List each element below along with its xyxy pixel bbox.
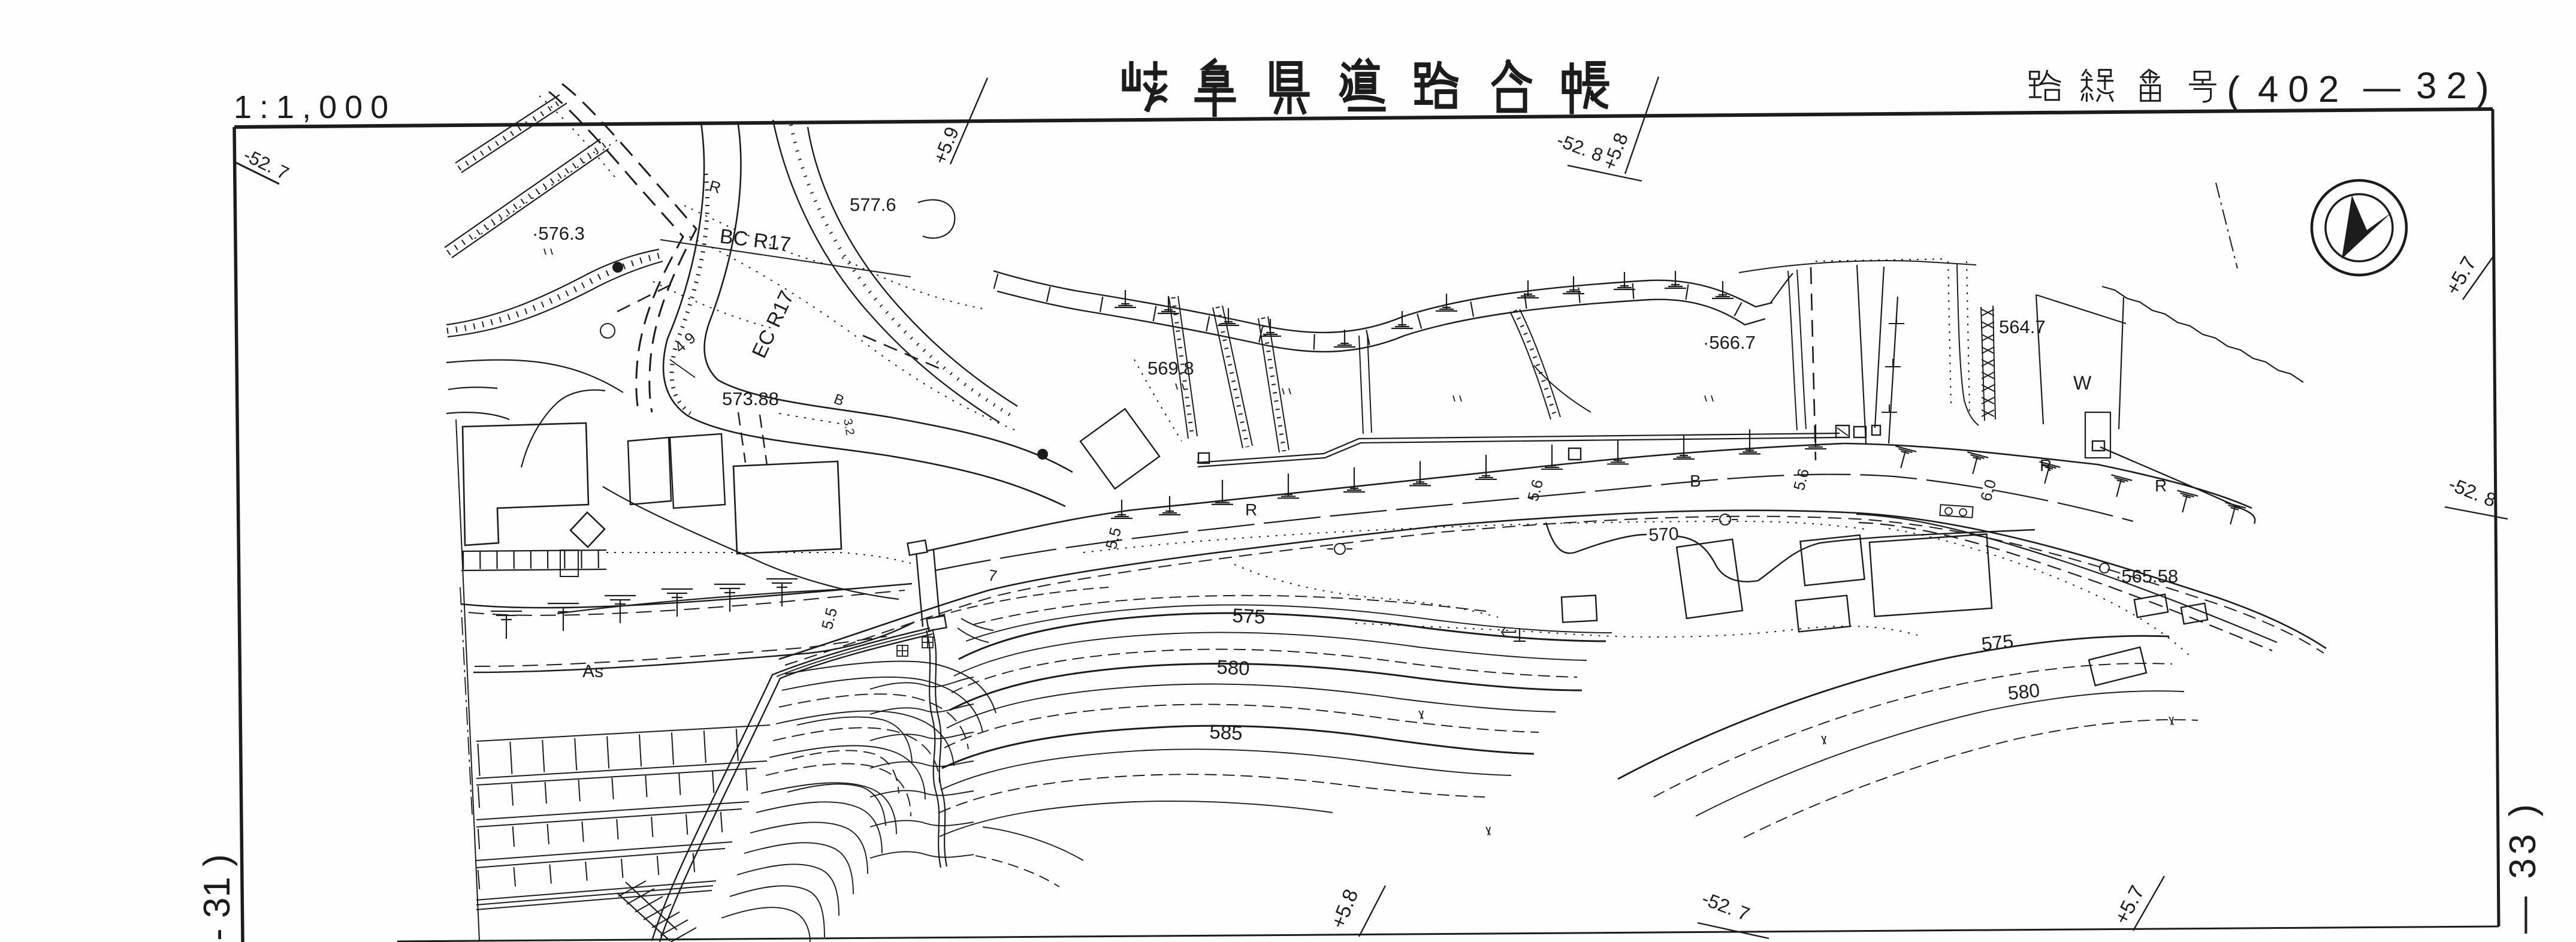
svg-text:B: B — [832, 391, 846, 409]
svg-text:·576.3: ·576.3 — [532, 223, 585, 244]
svg-text:As: As — [582, 662, 603, 681]
svg-text:573.88: 573.88 — [722, 388, 779, 409]
svg-text:4 9: 4 9 — [671, 328, 699, 356]
svg-text:+5.7: +5.7 — [2110, 882, 2149, 928]
svg-text:7: 7 — [987, 566, 998, 585]
svg-text:-52. 7: -52. 7 — [1699, 887, 1752, 925]
svg-text:-52. 8: -52. 8 — [1554, 129, 1606, 166]
svg-text:+5.8: +5.8 — [1327, 886, 1363, 932]
svg-text:575: 575 — [1980, 630, 2015, 655]
svg-text:W: W — [2073, 372, 2092, 394]
svg-text:585: 585 — [1209, 720, 1243, 744]
svg-text:32: 32 — [2416, 65, 2477, 107]
svg-text:·566.7: ·566.7 — [1703, 332, 1756, 353]
svg-text:R: R — [2155, 476, 2167, 495]
svg-text:B: B — [1690, 472, 1701, 490]
svg-text:569.8: 569.8 — [1147, 358, 1194, 379]
svg-text:580: 580 — [1216, 656, 1251, 680]
svg-text:577.6: 577.6 — [850, 194, 896, 215]
svg-text:R: R — [1245, 500, 1257, 519]
svg-text:570: 570 — [1648, 524, 1680, 545]
svg-text:3.2: 3.2 — [841, 418, 856, 436]
svg-text:5.6: 5.6 — [1524, 478, 1547, 503]
svg-text:·565.58: ·565.58 — [2115, 566, 2178, 587]
svg-text:— 33 ): — 33 ) — [2502, 801, 2544, 934]
svg-text:402: 402 — [2258, 69, 2348, 110]
svg-text:-52. 8: -52. 8 — [2445, 473, 2499, 511]
svg-text:): ) — [2476, 65, 2489, 109]
svg-text:1:1,000: 1:1,000 — [234, 89, 396, 125]
svg-text:R: R — [2040, 456, 2052, 475]
svg-text:- 31 ): - 31 ) — [197, 854, 238, 941]
svg-text:BC R17: BC R17 — [718, 225, 792, 256]
svg-text:6.0: 6.0 — [1977, 478, 2000, 503]
svg-text:575: 575 — [1232, 604, 1266, 628]
svg-text:580: 580 — [2007, 680, 2041, 704]
svg-text:(: ( — [2227, 68, 2240, 113]
svg-text:—: — — [2363, 67, 2400, 108]
svg-text:5.5: 5.5 — [818, 606, 841, 632]
svg-text:5.5: 5.5 — [1102, 526, 1125, 551]
svg-text:EC R17: EC R17 — [748, 287, 799, 361]
svg-text:+5.7: +5.7 — [2441, 253, 2481, 299]
svg-text:5.6: 5.6 — [1790, 467, 1813, 493]
svg-text:R: R — [707, 177, 723, 197]
